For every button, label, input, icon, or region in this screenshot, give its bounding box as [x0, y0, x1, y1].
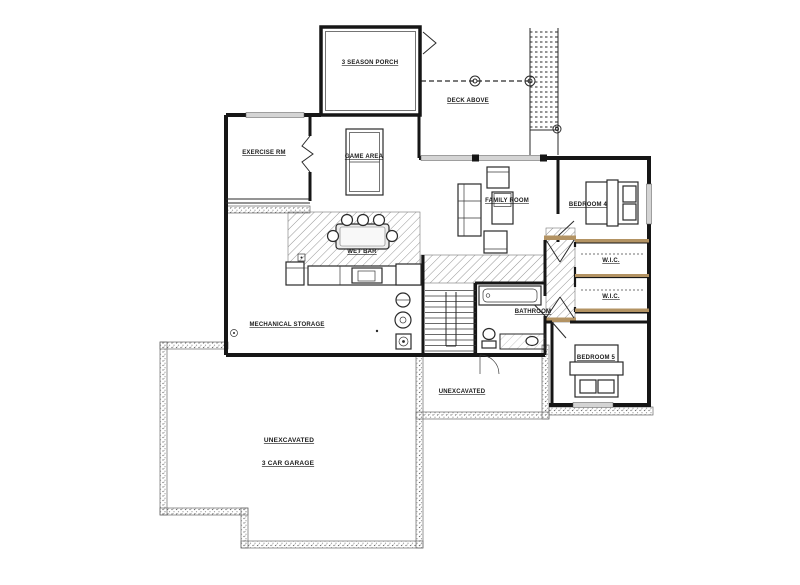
armchair — [487, 167, 509, 188]
coffee-table — [492, 192, 513, 224]
wall-post — [540, 155, 547, 162]
label-wet-bar: WET BAR — [347, 249, 377, 255]
exercise-window — [246, 113, 304, 118]
pillow — [580, 380, 596, 393]
bed-fold — [607, 180, 618, 226]
pillow — [623, 204, 636, 220]
label-bedroom4: BEDROOM 4 — [569, 202, 608, 208]
garage-right-wall — [416, 355, 423, 548]
unexcavated-bottom-wall — [416, 412, 549, 419]
label-bathroom: BATHROOM — [515, 309, 551, 315]
bar-stool — [328, 231, 339, 242]
paper-background — [0, 0, 800, 585]
garage-left-wall — [160, 342, 167, 515]
label-game-area: GAME AREA — [345, 154, 384, 160]
bar-stool — [358, 215, 369, 226]
toilet-bowl — [483, 329, 495, 340]
bed-fold — [570, 362, 623, 375]
toilet-tank — [482, 341, 496, 348]
refrigerator — [286, 262, 304, 285]
floor-plan-drawing: 3 SEASON PORCH DECK ABOVE EXERCISE RM GA… — [0, 0, 800, 585]
family-slider-window — [421, 156, 543, 161]
label-wic-2: W.I.C. — [602, 294, 620, 300]
label-unexcavated-mid: UNEXCAVATED — [439, 389, 486, 395]
sofa — [458, 184, 481, 236]
garage-bottom-wall — [241, 541, 423, 548]
bedroom5-window — [573, 403, 613, 408]
bar-island-top — [340, 227, 385, 246]
water-softener — [395, 312, 411, 328]
label-wic-1: W.I.C. — [602, 258, 620, 264]
vanity-sink — [526, 337, 538, 346]
hall-floor — [421, 255, 545, 283]
label-family-room: FAMILY ROOM — [485, 198, 529, 204]
pillow — [598, 380, 614, 393]
tan-door-header — [544, 236, 576, 241]
wall-post — [472, 155, 479, 162]
garage-step-wall-h — [160, 508, 248, 515]
label-exercise: EXERCISE RM — [242, 150, 286, 156]
bar-stool — [387, 231, 398, 242]
appliance-cabinet — [396, 264, 421, 285]
furnace-hub — [402, 340, 405, 343]
label-unexcavated-garage: UNEXCAVATED — [264, 437, 314, 444]
tan-wall-cap — [575, 309, 649, 313]
bedroom4-window — [647, 184, 652, 224]
garage-top-wall — [160, 342, 228, 349]
exercise-footing-band — [226, 206, 310, 213]
outlet-dot — [301, 257, 303, 259]
label-season-porch: 3 SEASON PORCH — [342, 60, 398, 66]
tan-wall-cap — [575, 274, 649, 277]
side-chair — [484, 231, 507, 253]
floor-drain-dot — [233, 332, 235, 334]
bedroom-hall-floor — [546, 228, 575, 322]
floor-plan-sheet: 3 SEASON PORCH DECK ABOVE EXERCISE RM GA… — [0, 0, 800, 585]
tan-wall-cap — [575, 239, 649, 243]
label-mechanical: MECHANICAL STORAGE — [249, 322, 324, 328]
bedroom5-footing-band — [549, 407, 653, 415]
label-bedroom5: BEDROOM 5 — [577, 355, 616, 361]
bar-stool — [374, 215, 385, 226]
bar-stool — [342, 215, 353, 226]
pillow — [623, 186, 636, 202]
label-deck-above: DECK ABOVE — [447, 98, 489, 104]
post-dot — [376, 330, 378, 332]
label-garage: 3 CAR GARAGE — [262, 460, 315, 467]
